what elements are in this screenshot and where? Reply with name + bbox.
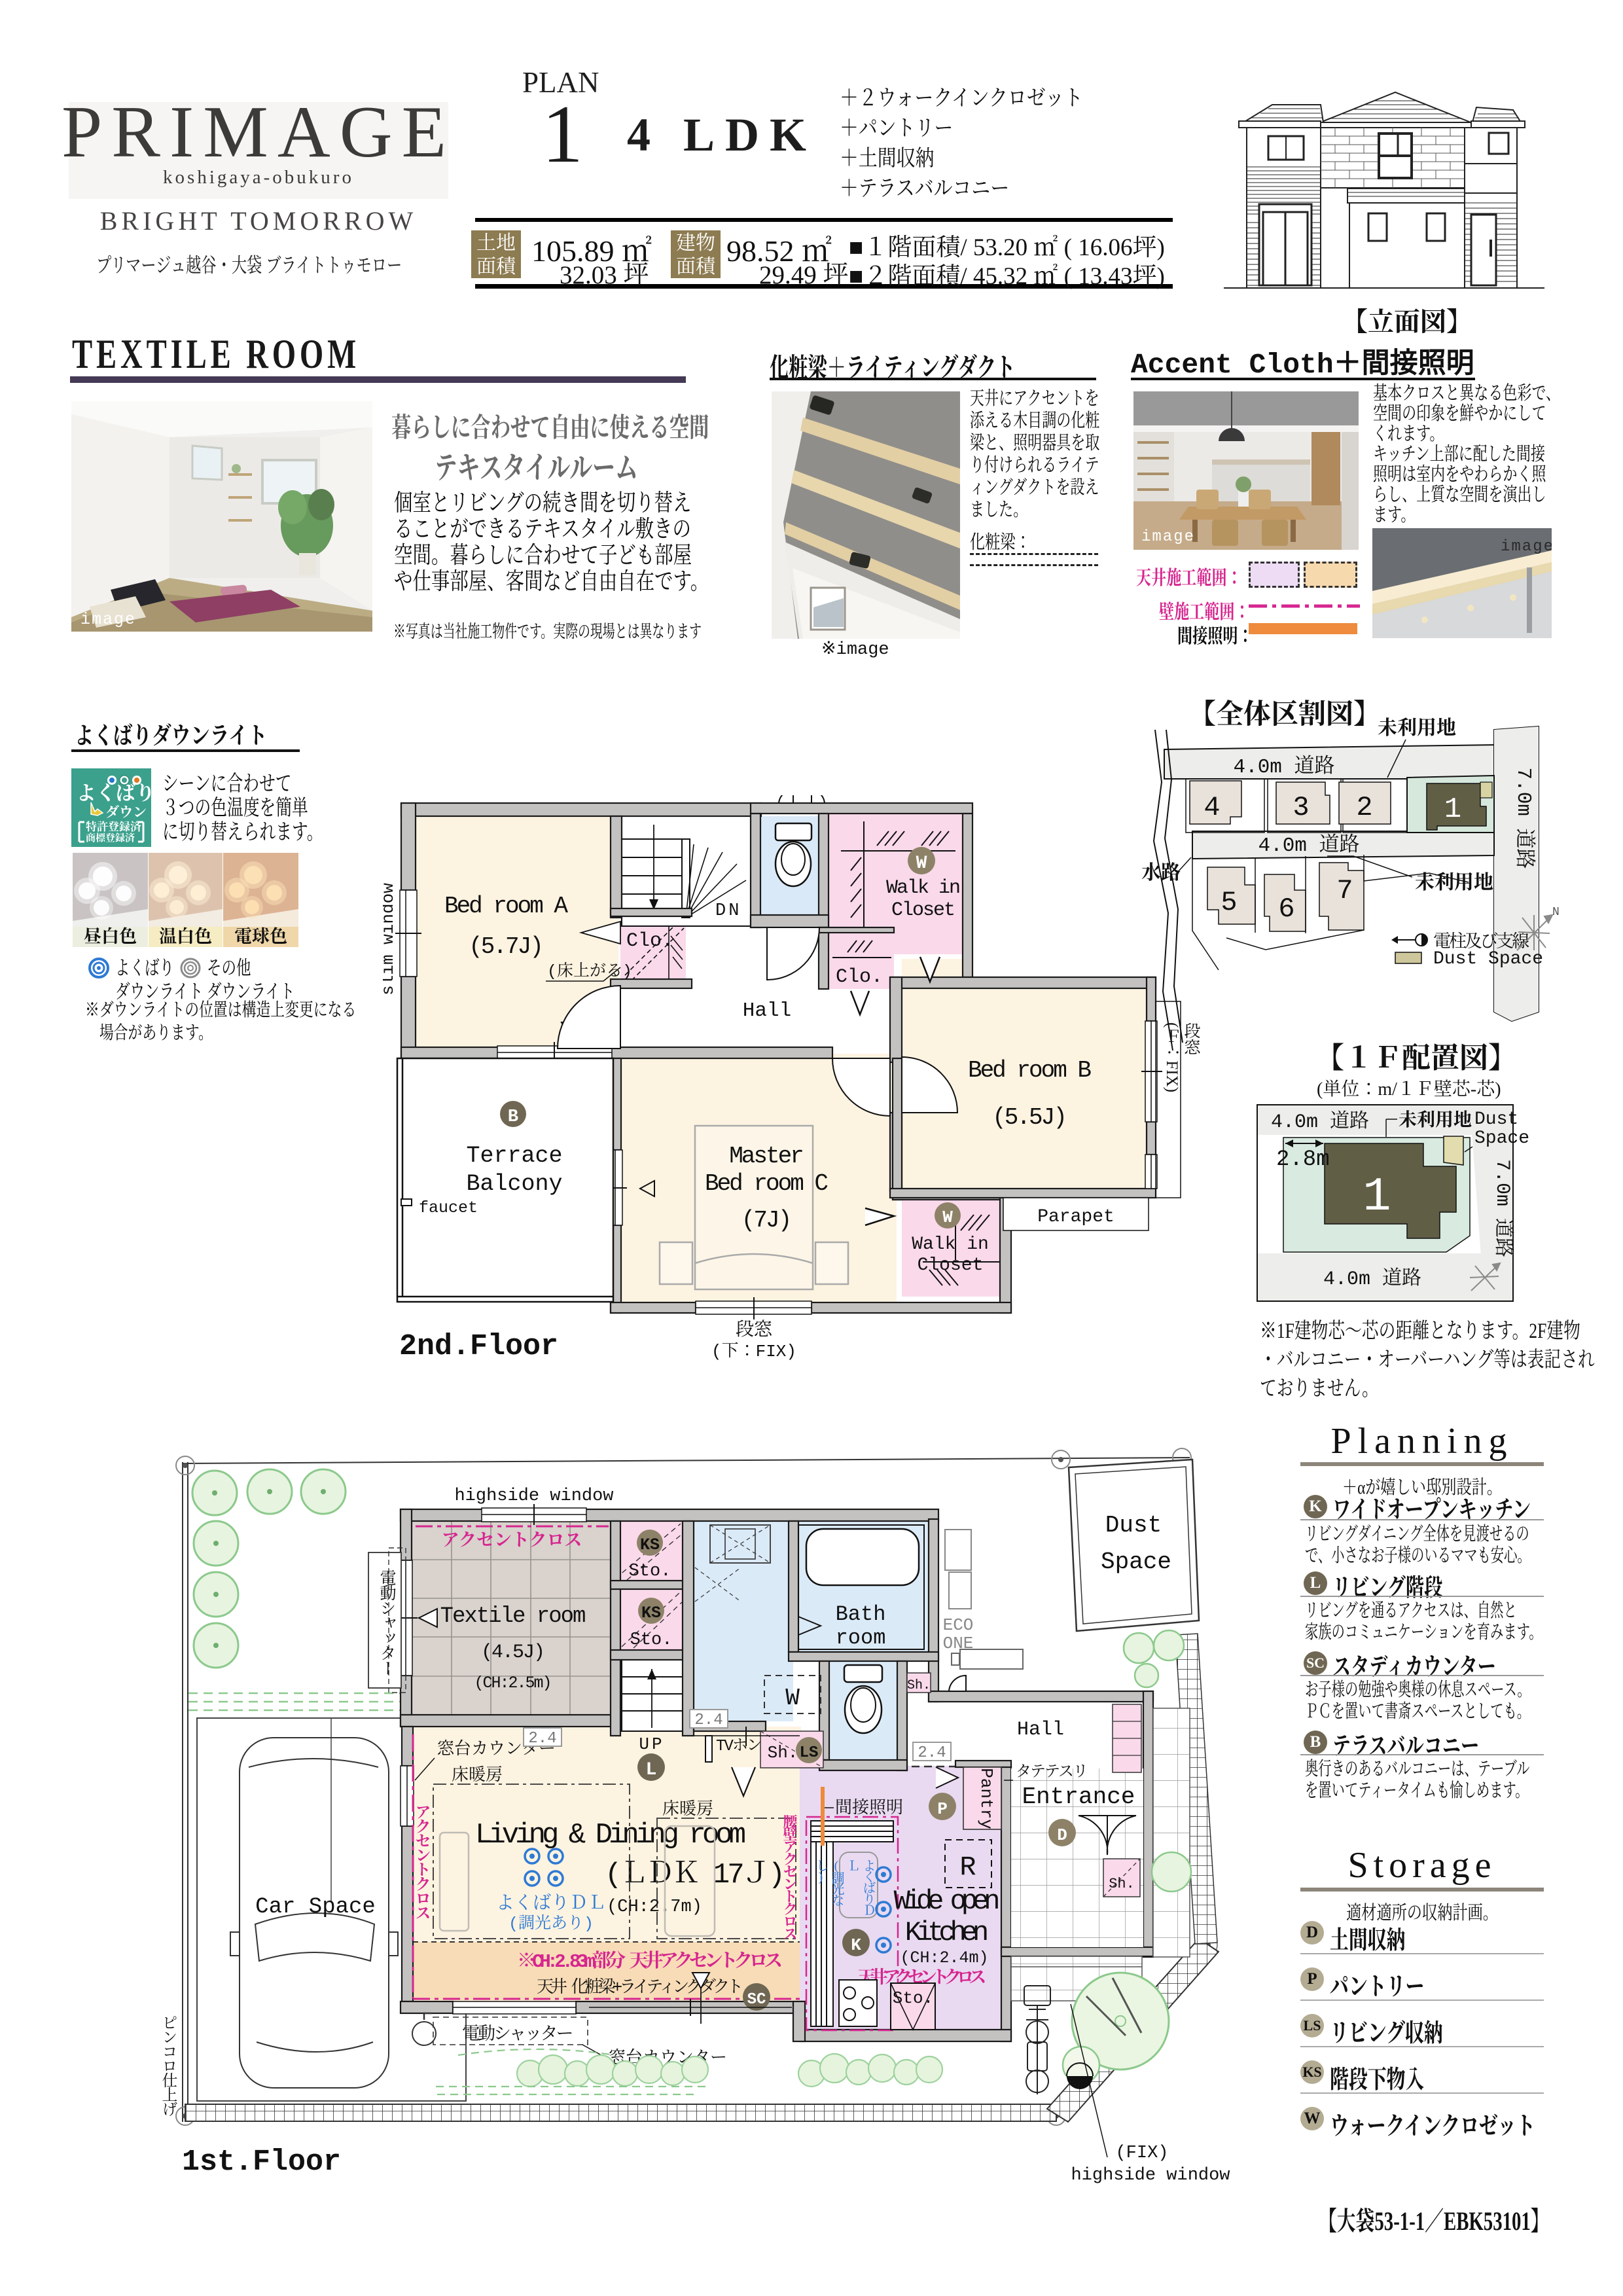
svg-text:UP: UP bbox=[639, 1734, 664, 1754]
svg-text:LS: LS bbox=[800, 1744, 819, 1762]
svg-text:B: B bbox=[508, 1107, 518, 1127]
svg-text:未利用地: 未利用地 bbox=[1399, 1109, 1472, 1132]
svg-text:image: image bbox=[1501, 538, 1552, 556]
svg-text:Bed room C: Bed room C bbox=[705, 1170, 828, 1197]
svg-text:アクセントクロス: アクセントクロス bbox=[442, 1531, 582, 1552]
svg-text:SC: SC bbox=[747, 1991, 766, 2009]
svg-text:Sh.: Sh. bbox=[768, 1743, 798, 1763]
svg-text:段窓: 段窓 bbox=[736, 1319, 773, 1341]
svg-text:faucet: faucet bbox=[419, 1198, 478, 1217]
svg-text:(ＬＤＫ 17Ｊ): (ＬＤＫ 17Ｊ) bbox=[605, 1859, 783, 1892]
svg-text:5: 5 bbox=[1221, 887, 1237, 918]
svg-text:床暖房: 床暖房 bbox=[662, 1799, 713, 1820]
svg-text:Closet: Closet bbox=[918, 1255, 984, 1276]
svg-text:(4.5J): (4.5J) bbox=[481, 1641, 544, 1664]
svg-text:Clo.: Clo. bbox=[836, 966, 883, 988]
svg-text:Living & Dining room: Living & Dining room bbox=[475, 1819, 745, 1852]
svg-text:Space: Space bbox=[1101, 1549, 1171, 1575]
svg-text:4.0m 道路: 4.0m 道路 bbox=[1271, 1110, 1369, 1134]
svg-text:商標登録済: 商標登録済 bbox=[86, 832, 135, 844]
svg-text:2.4: 2.4 bbox=[694, 1712, 722, 1729]
svg-text:(5.7J): (5.7J) bbox=[469, 933, 542, 960]
svg-text:Car Space: Car Space bbox=[255, 1895, 376, 1920]
svg-text:Walk in: Walk in bbox=[886, 877, 959, 899]
svg-text:1: 1 bbox=[1444, 793, 1461, 826]
svg-text:room: room bbox=[836, 1626, 886, 1650]
svg-text:未利用地: 未利用地 bbox=[1378, 717, 1456, 741]
svg-text:特許登録済: 特許登録済 bbox=[86, 820, 141, 834]
svg-text:D: D bbox=[1057, 1825, 1067, 1845]
svg-text:※CH:2.83m部分 天井アクセントクロス: ※CH:2.83m部分 天井アクセントクロス bbox=[517, 1950, 781, 1973]
svg-text:N: N bbox=[1552, 906, 1560, 919]
svg-text:image: image bbox=[80, 610, 136, 629]
svg-text:7: 7 bbox=[1336, 875, 1353, 906]
svg-text:タテテスリ: タテテスリ bbox=[1016, 1763, 1087, 1782]
svg-text:image: image bbox=[1141, 528, 1195, 546]
svg-text:Walk in: Walk in bbox=[912, 1234, 989, 1255]
svg-text:電動シャッター: 電動シャッター bbox=[462, 2024, 572, 2045]
svg-text:Parapet: Parapet bbox=[1037, 1207, 1115, 1227]
svg-text:Sh.: Sh. bbox=[1109, 1876, 1135, 1892]
svg-text:(CH:2.5m): (CH:2.5m) bbox=[474, 1674, 550, 1693]
svg-text:Hall: Hall bbox=[743, 999, 791, 1022]
svg-text:ECO: ECO bbox=[943, 1615, 974, 1635]
svg-text:Sto.: Sto. bbox=[893, 1988, 933, 2008]
svg-text:Bed room B: Bed room B bbox=[968, 1057, 1091, 1084]
svg-text:R: R bbox=[959, 1852, 976, 1883]
svg-text:Pantry: Pantry bbox=[976, 1768, 996, 1829]
svg-text:L: L bbox=[646, 1760, 657, 1780]
svg-text:よくばり: よくばり bbox=[77, 783, 151, 806]
svg-text:間接照明: 間接照明 bbox=[835, 1798, 903, 1818]
svg-text:2: 2 bbox=[1356, 792, 1372, 823]
svg-text:2.4: 2.4 bbox=[528, 1730, 556, 1748]
svg-text:Hall: Hall bbox=[1017, 1719, 1064, 1741]
svg-text:(CH:2.7m): (CH:2.7m) bbox=[607, 1897, 702, 1917]
svg-text:よくばりＤＬ: よくばりＤＬ bbox=[496, 1892, 606, 1914]
svg-text:Bath: Bath bbox=[836, 1602, 886, 1626]
svg-text:Dust: Dust bbox=[1105, 1512, 1162, 1539]
svg-text:Kitchen: Kitchen bbox=[905, 1917, 987, 1948]
svg-text:(床上がる): (床上がる) bbox=[547, 961, 632, 981]
svg-text:Entrance: Entrance bbox=[1022, 1784, 1135, 1810]
svg-text:2.8m: 2.8m bbox=[1276, 1147, 1330, 1172]
svg-text:Wide open: Wide open bbox=[894, 1886, 999, 1917]
svg-text:(7J): (7J) bbox=[741, 1207, 790, 1234]
svg-text:Sto.: Sto. bbox=[630, 1630, 673, 1650]
svg-text:TVホン: TVホン bbox=[716, 1738, 761, 1755]
svg-text:KS: KS bbox=[640, 1535, 660, 1554]
svg-text:K: K bbox=[851, 1935, 861, 1955]
svg-text:Space: Space bbox=[1474, 1128, 1529, 1149]
svg-text:P: P bbox=[937, 1799, 948, 1819]
svg-text:6: 6 bbox=[1278, 893, 1294, 925]
svg-text:DN: DN bbox=[715, 901, 741, 921]
svg-text:2.4: 2.4 bbox=[918, 1744, 946, 1762]
svg-text:(調光あり): (調光あり) bbox=[508, 1914, 594, 1933]
svg-text:W: W bbox=[785, 1685, 800, 1712]
svg-text:Sto.: Sto. bbox=[629, 1562, 671, 1581]
svg-text:(FIX): (FIX) bbox=[1115, 2144, 1168, 2163]
svg-text:Sh.: Sh. bbox=[907, 1678, 931, 1693]
svg-text:ダウン: ダウン bbox=[105, 805, 147, 821]
svg-text:highside window: highside window bbox=[454, 1486, 613, 1506]
svg-text:(CH:2.4m): (CH:2.4m) bbox=[900, 1948, 988, 1967]
svg-text:床暖房: 床暖房 bbox=[452, 1765, 503, 1785]
svg-text:未利用地: 未利用地 bbox=[1415, 872, 1493, 895]
svg-text:Dust: Dust bbox=[1474, 1109, 1518, 1130]
svg-text:Master: Master bbox=[729, 1143, 802, 1170]
svg-text:slim window: slim window bbox=[383, 883, 398, 996]
svg-text:W: W bbox=[916, 853, 927, 874]
svg-text:Clo.: Clo. bbox=[626, 930, 673, 952]
svg-text:4.0m 道路: 4.0m 道路 bbox=[1323, 1267, 1421, 1291]
svg-text:(5.5J): (5.5J) bbox=[992, 1104, 1065, 1131]
svg-text:4.0m 道路: 4.0m 道路 bbox=[1233, 755, 1334, 779]
svg-text:Terrace: Terrace bbox=[466, 1143, 562, 1169]
svg-text:Balcony: Balcony bbox=[466, 1171, 562, 1197]
svg-text:Closet: Closet bbox=[891, 899, 954, 922]
svg-text:KS: KS bbox=[641, 1604, 661, 1623]
svg-text:W: W bbox=[942, 1208, 953, 1227]
svg-text:4.0m 道路: 4.0m 道路 bbox=[1258, 833, 1359, 857]
svg-text:Bed room A: Bed room A bbox=[444, 893, 568, 920]
svg-text:3: 3 bbox=[1293, 792, 1309, 823]
svg-text:7.0m 道路: 7.0m 道路 bbox=[1512, 767, 1536, 869]
svg-text:1: 1 bbox=[1363, 1170, 1391, 1224]
svg-text:7.0m 道路: 7.0m 道路 bbox=[1491, 1159, 1514, 1257]
svg-text:highside window: highside window bbox=[1071, 2166, 1230, 2185]
svg-text:Textile room: Textile room bbox=[440, 1604, 585, 1629]
svg-text:Dust Space: Dust Space bbox=[1433, 949, 1543, 969]
svg-text:4: 4 bbox=[1204, 792, 1220, 823]
svg-text:(下：FIX): (下：FIX) bbox=[711, 1342, 796, 1361]
svg-text:水路: 水路 bbox=[1141, 862, 1181, 886]
svg-text:天井 化粧梁+ライティングダクト: 天井 化粧梁+ライティングダクト bbox=[537, 1977, 740, 1998]
